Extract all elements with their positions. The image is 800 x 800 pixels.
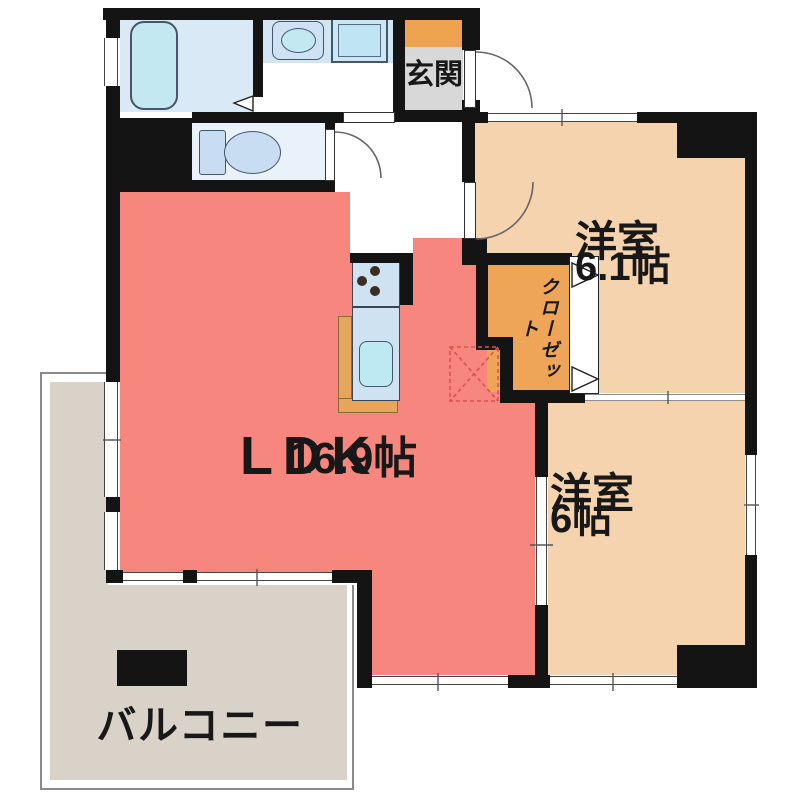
window [372,676,508,685]
wall-segment [745,390,757,455]
window [197,572,332,581]
balcony-floor [50,382,108,585]
wall-segment [476,265,488,337]
ldk-floor [357,573,535,675]
entrance-door-arc [476,52,532,108]
kitchen-sink [359,341,393,387]
wall-segment [106,8,120,38]
wall-segment [253,14,263,97]
window [550,676,677,685]
wall-segment [106,570,123,583]
washroom-door [343,112,395,123]
window [488,113,637,122]
genkan-step [405,18,463,47]
stove-burner [357,276,367,286]
window [746,455,756,555]
ac-outdoor-unit [117,650,187,686]
wall-segment [400,263,413,305]
wall-segment [677,645,757,688]
toilet-bowl [224,131,281,174]
wall-segment [745,155,757,390]
wall-segment [332,570,372,583]
wall-segment [103,8,480,20]
partition-sliding-panel [585,394,745,401]
wall-segment [106,497,120,512]
balcony-railing [40,788,354,790]
wall-segment [508,675,550,688]
room-label-genkan: 玄関 [403,60,465,90]
floorplan-canvas: 玄関 洋室 6.1帖 LDK 16.9帖 洋室 6帖 クローゼット バルコニー [0,0,800,800]
sliding-door-ldk-bedroom2 [536,477,547,605]
stove-burner [370,286,380,296]
stove-burner [370,266,380,276]
balcony-floor [50,585,347,780]
wall-segment [115,180,335,192]
wall-segment [183,570,197,583]
bedroom1-size: 6.1帖 [575,246,671,288]
window [104,512,118,570]
wall-segment [476,337,513,350]
wall-segment [637,112,677,123]
entrance-door-leaf [464,50,476,108]
wall-segment [745,555,757,650]
toilet-door-leaf [325,129,335,181]
wall-segment [677,112,757,158]
bedroom1-floor [677,158,745,393]
wall-segment [350,253,413,263]
toilet-door-arc [335,132,381,178]
balcony-railing [352,585,354,790]
wall-segment [106,86,120,382]
toilet-tank [199,130,226,175]
window [104,38,118,86]
wall-segment [535,403,548,477]
bathtub [130,21,178,110]
wall-segment [462,122,475,182]
room-label-closet: クローゼット [517,268,557,390]
washing-machine-pan-inner [338,24,381,57]
balcony-railing [40,372,108,374]
window [123,572,183,581]
wall-segment [357,668,372,688]
wall-segment [535,605,548,675]
wall-segment [192,112,343,123]
balcony-railing [40,372,42,790]
ldk-floor [120,192,350,573]
room-label-ldk: LDK 16.9帖 [240,428,465,482]
washbasin-bowl [281,28,316,53]
room-label-balcony: バルコニー [70,705,330,747]
wall-segment [357,583,372,668]
ldk-name: LDK [240,428,380,485]
wall-segment [476,253,572,265]
wall-segment [500,350,513,395]
bedroom2-size: 6帖 [550,498,612,540]
kitchen-counter-divider [352,306,400,308]
wall-segment [462,8,480,50]
window [104,382,118,497]
bedroom1-door-leaf [464,182,476,239]
